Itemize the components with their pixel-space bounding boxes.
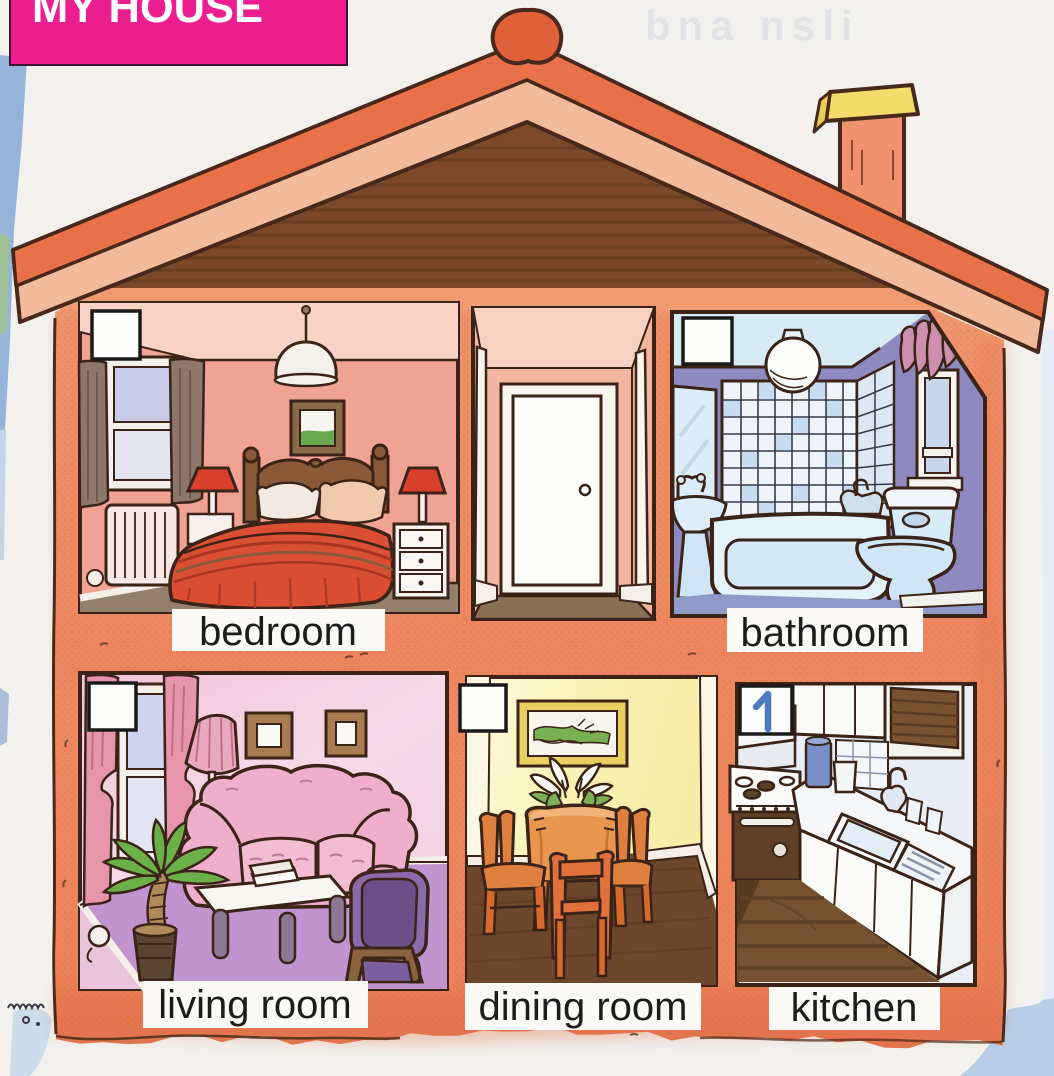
svg-text:dining room: dining room	[478, 985, 687, 1029]
svg-text:bna nsli: bna nsli	[645, 2, 860, 49]
svg-text:bedroom: bedroom	[199, 610, 357, 654]
svg-text:living room: living room	[158, 983, 351, 1027]
svg-text:MY HOUSE: MY HOUSE	[32, 0, 263, 32]
svg-text:bathroom: bathroom	[741, 611, 910, 655]
svg-text:kitchen: kitchen	[791, 986, 918, 1030]
